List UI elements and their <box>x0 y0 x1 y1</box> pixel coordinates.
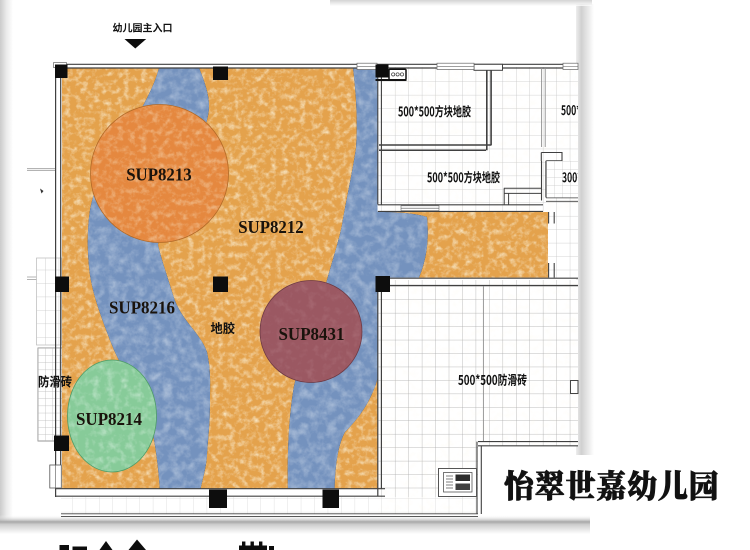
svg-text:SUP8214: SUP8214 <box>76 409 142 429</box>
svg-text:SUP8216: SUP8216 <box>109 298 175 318</box>
svg-text:SUP8431: SUP8431 <box>279 324 345 344</box>
svg-text:SUP8213: SUP8213 <box>126 164 192 184</box>
svg-text:SUP8212: SUP8212 <box>238 217 304 237</box>
